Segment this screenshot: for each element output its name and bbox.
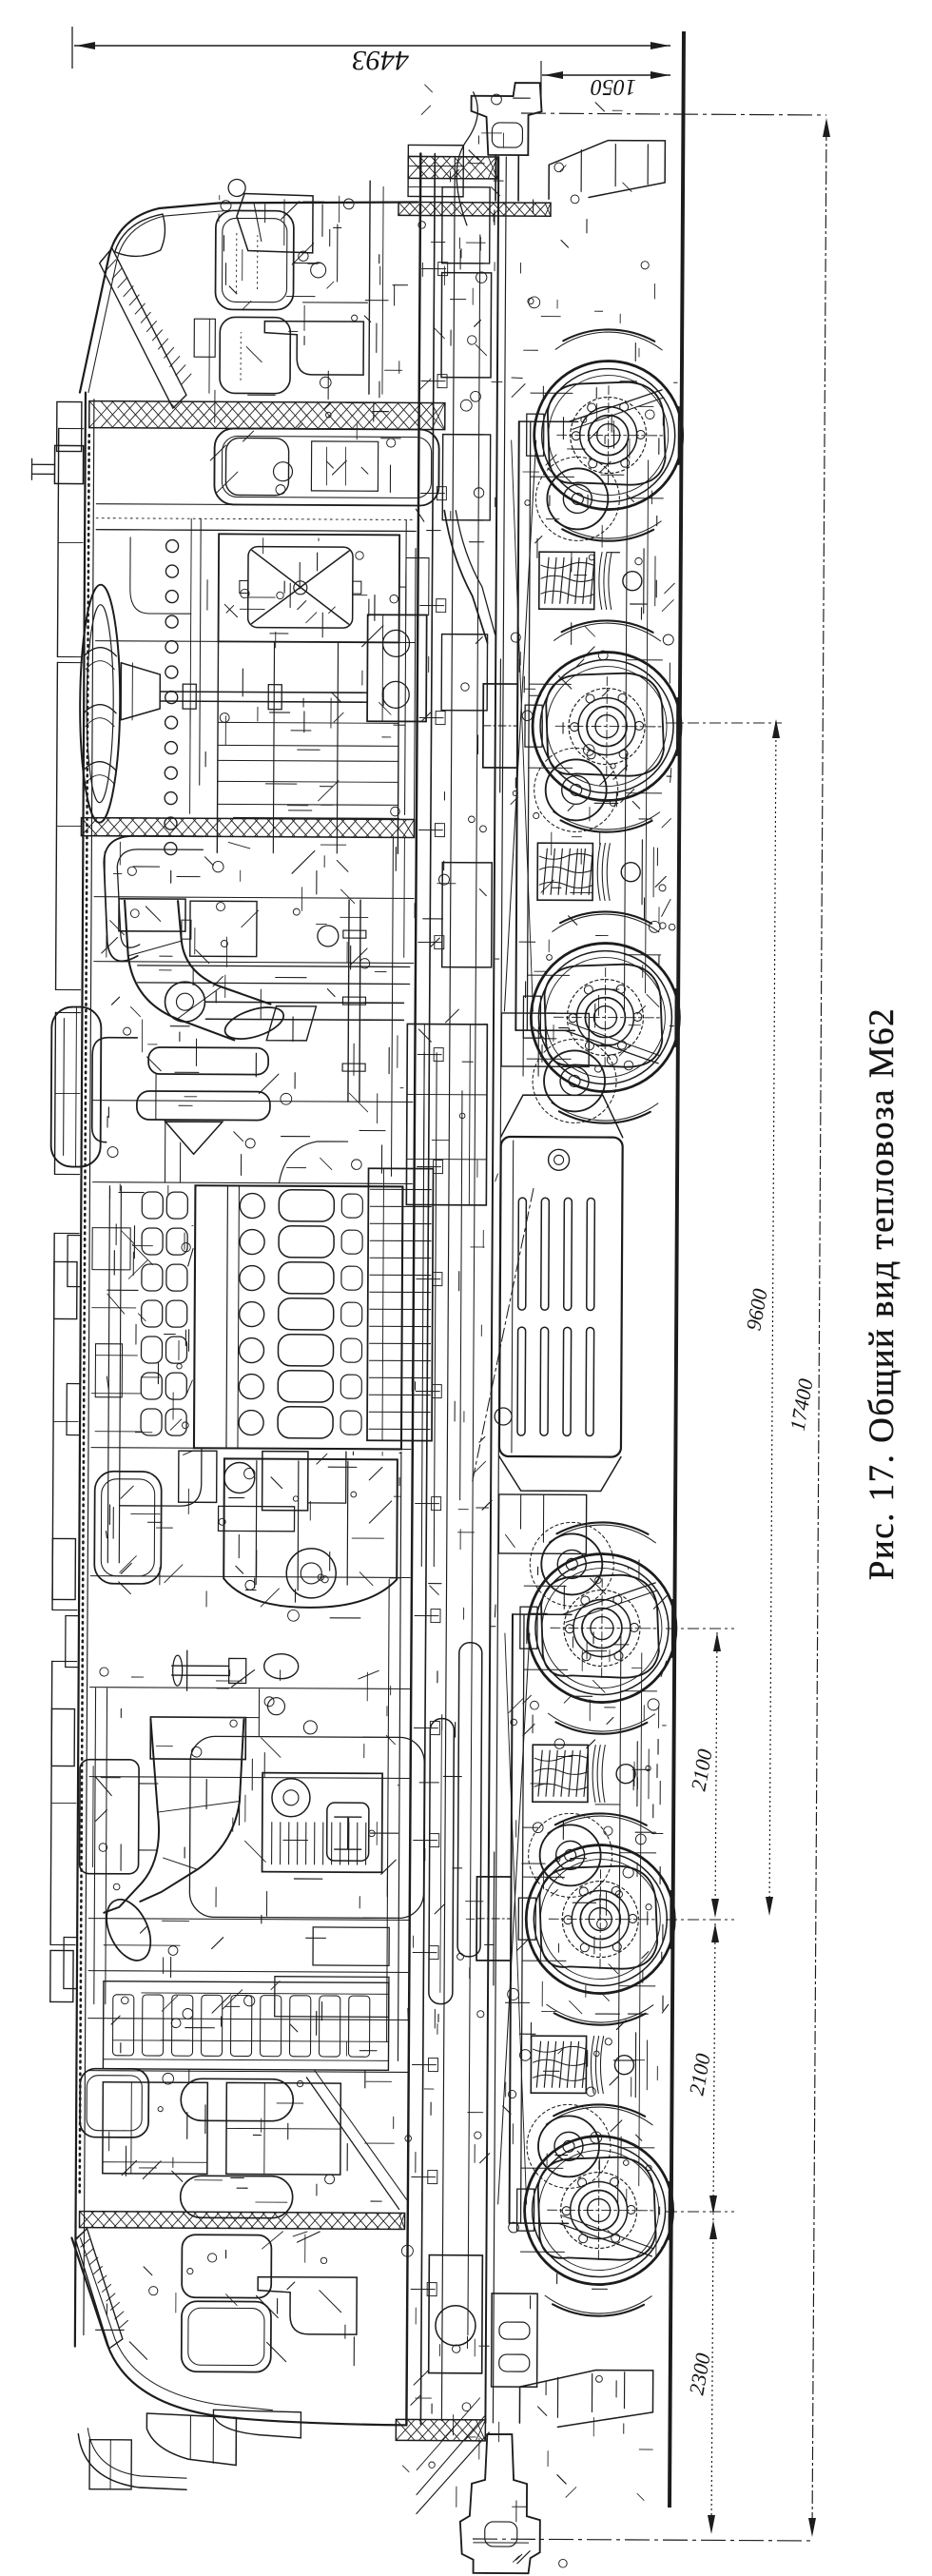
svg-text:Рис. 17. Общий вид тепловоза М: Рис. 17. Общий вид тепловоза М62 (863, 1007, 902, 1580)
svg-text:4493: 4493 (352, 45, 409, 76)
svg-text:1050: 1050 (591, 74, 636, 99)
